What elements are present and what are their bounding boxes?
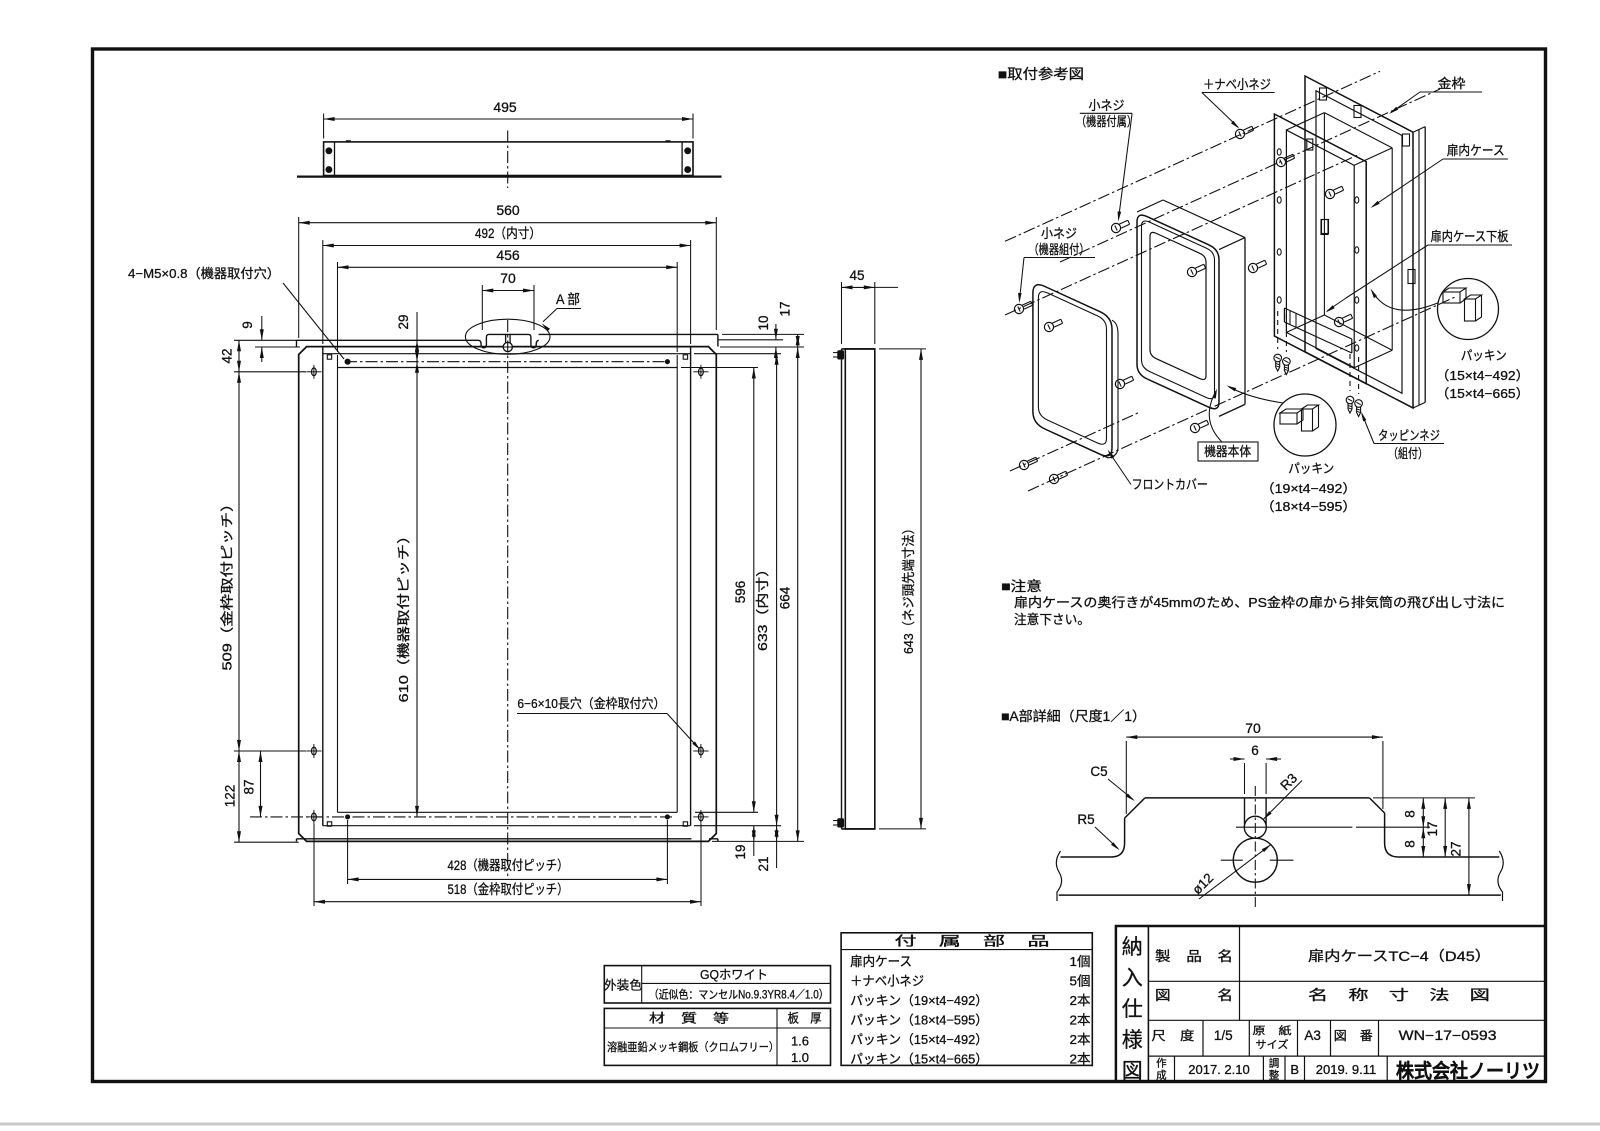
svg-text:図 名: 図 名: [1155, 988, 1233, 1003]
svg-text:■A部詳細（尺度1／1）: ■A部詳細（尺度1／1）: [1001, 709, 1146, 724]
svg-text:扉内ケースTC−4（D45）: 扉内ケースTC−4（D45）: [1308, 948, 1491, 964]
svg-text:643（ネジ頭先端寸法）: 643（ネジ頭先端寸法）: [901, 522, 916, 654]
svg-text:21: 21: [756, 856, 771, 871]
svg-text:（19×t4−492）: （19×t4−492）: [1261, 481, 1357, 496]
svg-text:10: 10: [756, 315, 771, 330]
svg-text:2本: 2本: [1070, 1052, 1091, 1067]
svg-text:＋ナベ小ネジ: ＋ナベ小ネジ: [850, 974, 924, 989]
svg-text:610（機器取付ピッチ）: 610（機器取付ピッチ）: [396, 528, 411, 703]
svg-text:■注意: ■注意: [1001, 578, 1042, 594]
svg-text:GQホワイト: GQホワイト: [700, 968, 768, 982]
svg-text:小ネジ: 小ネジ: [1041, 226, 1077, 241]
svg-text:19: 19: [733, 844, 748, 859]
svg-text:（15×t4−665）: （15×t4−665）: [1436, 386, 1530, 401]
svg-text:70: 70: [1245, 720, 1261, 736]
svg-text:2019. 9.11: 2019. 9.11: [1316, 1062, 1376, 1077]
svg-text:2本: 2本: [1070, 993, 1091, 1008]
svg-text:87: 87: [242, 779, 257, 794]
svg-text:（近似色：マンセルNo.9.3YR8.4／1.0）: （近似色：マンセルNo.9.3YR8.4／1.0）: [649, 988, 829, 1002]
svg-text:小ネジ: 小ネジ: [1089, 98, 1125, 113]
svg-text:図: 図: [1122, 1060, 1143, 1083]
svg-text:664: 664: [778, 586, 793, 609]
svg-text:456: 456: [496, 247, 520, 263]
svg-text:B: B: [1290, 1062, 1299, 1077]
svg-text:2017. 2.10: 2017. 2.10: [1188, 1062, 1249, 1077]
svg-text:8: 8: [1403, 840, 1418, 848]
svg-text:扉内ケース下板: 扉内ケース下板: [1431, 229, 1509, 244]
svg-text:495: 495: [493, 99, 517, 115]
svg-text:A 部: A 部: [556, 292, 580, 307]
svg-text:509（金枠取付ピッチ）: 509（金枠取付ピッチ）: [220, 496, 235, 671]
svg-text:注意下さい。: 注意下さい。: [1014, 612, 1090, 627]
svg-text:■取付参考図: ■取付参考図: [998, 66, 1084, 82]
svg-text:納: 納: [1122, 936, 1143, 959]
svg-text:金枠: 金枠: [1438, 76, 1466, 91]
svg-text:サイズ: サイズ: [1256, 1038, 1289, 1051]
svg-text:2本: 2本: [1070, 1032, 1091, 1047]
svg-text:29: 29: [396, 314, 411, 329]
svg-text:（組付）: （組付）: [1388, 446, 1428, 461]
svg-text:1.0: 1.0: [791, 1050, 809, 1065]
svg-text:パッキン（15×t4−492）: パッキン（15×t4−492）: [850, 1032, 988, 1047]
svg-text:パッキン: パッキン: [1461, 348, 1507, 363]
svg-text:作: 作: [1156, 1058, 1167, 1070]
svg-text:外装色: 外装色: [604, 978, 642, 993]
svg-text:パッキン（18×t4−595）: パッキン（18×t4−595）: [850, 1013, 988, 1028]
svg-text:パッキン（19×t4−492）: パッキン（19×t4−492）: [850, 993, 988, 1008]
svg-text:＋ナベ小ネジ: ＋ナベ小ネジ: [1203, 77, 1271, 92]
svg-text:製 品 名: 製 品 名: [1155, 949, 1233, 964]
svg-text:扉内ケース: 扉内ケース: [850, 954, 912, 969]
svg-text:9: 9: [240, 321, 255, 329]
svg-text:パッキン（15×t4−665）: パッキン（15×t4−665）: [850, 1052, 988, 1067]
svg-text:42: 42: [220, 348, 235, 363]
svg-text:A3: A3: [1304, 1028, 1321, 1043]
svg-text:仕: 仕: [1122, 998, 1143, 1021]
svg-text:4−M5×0.8（機器取付穴）: 4−M5×0.8（機器取付穴）: [128, 266, 280, 281]
svg-text:尺 度: 尺 度: [1151, 1028, 1195, 1043]
svg-text:入: 入: [1122, 967, 1143, 990]
svg-text:名 称 寸 法 図: 名 称 寸 法 図: [1308, 987, 1490, 1003]
svg-text:（機器付属）: （機器付属）: [1076, 114, 1137, 129]
svg-text:パッキン: パッキン: [1288, 461, 1334, 476]
svg-text:整: 整: [1269, 1069, 1280, 1082]
svg-text:扉内ケースの奥行きが45mmのため、PS金枠の扉から排気筒の: 扉内ケースの奥行きが45mmのため、PS金枠の扉から排気筒の飛び出し寸法に: [1014, 595, 1505, 610]
svg-text:株式会社ノーリツ: 株式会社ノーリツ: [1396, 1060, 1540, 1083]
svg-text:原 紙: 原 紙: [1253, 1024, 1293, 1037]
svg-text:R5: R5: [1077, 812, 1094, 827]
svg-text:タッピンネジ: タッピンネジ: [1378, 428, 1440, 443]
svg-text:1.6: 1.6: [791, 1034, 809, 1049]
svg-text:機器本体: 機器本体: [1204, 444, 1251, 459]
svg-text:8: 8: [1403, 810, 1418, 818]
svg-text:5個: 5個: [1070, 974, 1091, 989]
svg-text:成: 成: [1156, 1070, 1167, 1082]
svg-text:122: 122: [223, 785, 238, 808]
svg-text:（18×t4−595）: （18×t4−595）: [1261, 499, 1357, 514]
svg-text:フロントカバー: フロントカバー: [1132, 477, 1208, 492]
svg-text:27: 27: [1449, 841, 1464, 856]
svg-text:6: 6: [1251, 743, 1259, 758]
svg-text:596: 596: [733, 581, 748, 604]
svg-text:2本: 2本: [1070, 1013, 1091, 1028]
svg-text:70: 70: [500, 270, 516, 286]
svg-text:扉内ケース: 扉内ケース: [1447, 143, 1505, 158]
svg-text:45: 45: [849, 268, 864, 283]
svg-text:板 厚: 板 厚: [788, 1012, 822, 1026]
svg-text:付 属 部 品: 付 属 部 品: [895, 934, 1050, 949]
svg-text:C5: C5: [1090, 764, 1107, 779]
svg-text:518（金枠取付ピッチ）: 518（金枠取付ピッチ）: [448, 882, 569, 897]
svg-text:1/5: 1/5: [1214, 1028, 1233, 1043]
svg-text:調: 調: [1269, 1057, 1280, 1070]
svg-text:（機器組付）: （機器組付）: [1029, 242, 1090, 257]
svg-text:WN−17−0593: WN−17−0593: [1399, 1028, 1497, 1043]
svg-text:1個: 1個: [1070, 954, 1091, 969]
svg-text:図 番: 図 番: [1334, 1029, 1374, 1043]
svg-text:428（機器取付ピッチ）: 428（機器取付ピッチ）: [448, 858, 569, 873]
svg-text:溶融亜鉛メッキ鋼板（クロムフリー）: 溶融亜鉛メッキ鋼板（クロムフリー）: [607, 1040, 779, 1054]
svg-text:560: 560: [496, 202, 520, 218]
svg-text:17: 17: [778, 301, 793, 316]
svg-text:17: 17: [1425, 821, 1440, 836]
svg-text:633（内寸）: 633（内寸）: [755, 561, 770, 651]
svg-text:6−6×10長穴（金枠取付穴）: 6−6×10長穴（金枠取付穴）: [517, 696, 665, 711]
svg-text:（15×t4−492）: （15×t4−492）: [1436, 368, 1530, 383]
svg-text:様: 様: [1122, 1029, 1143, 1052]
svg-text:492（内寸）: 492（内寸）: [475, 226, 541, 241]
svg-text:材 質 等: 材 質 等: [649, 1011, 729, 1026]
